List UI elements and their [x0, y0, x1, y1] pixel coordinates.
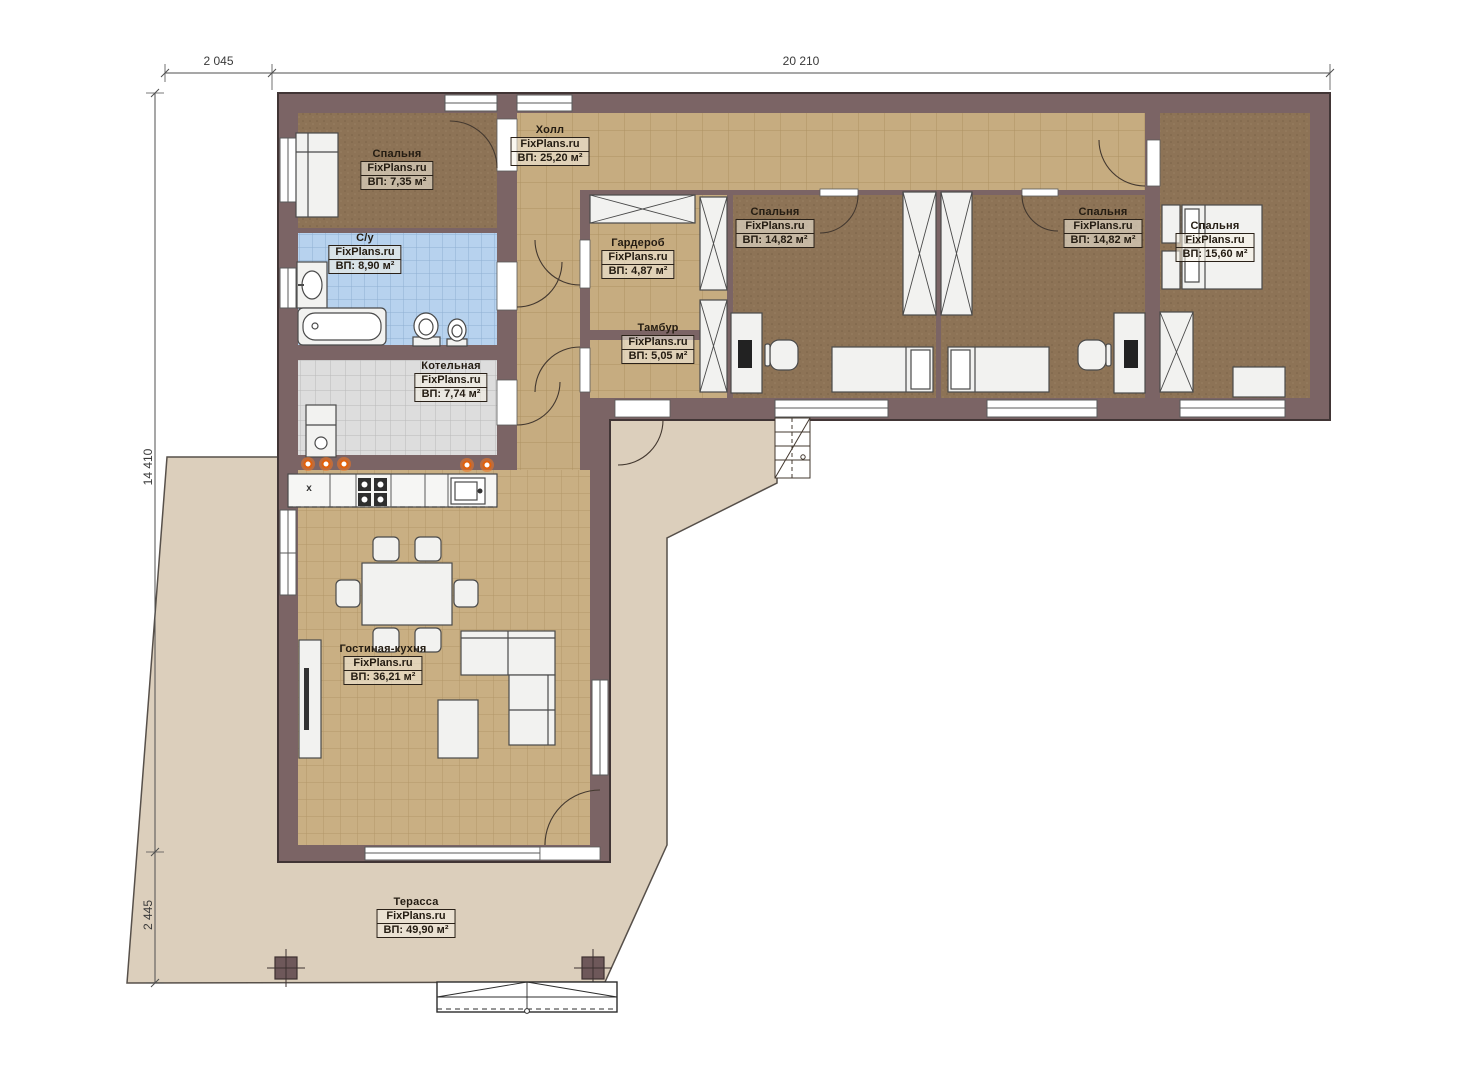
window	[280, 268, 296, 308]
room-name: Котельная	[414, 360, 487, 372]
room-brand: FixPlans.ru	[377, 909, 456, 924]
window	[1180, 400, 1285, 417]
room-area: ВП: 7,74 м²	[414, 387, 487, 402]
spotlight-icon	[460, 458, 474, 472]
window	[445, 95, 497, 111]
room-name: Спальня	[1064, 206, 1143, 218]
coffee-table	[438, 700, 478, 758]
room-name: С/у	[328, 232, 401, 244]
room-brand: FixPlans.ru	[601, 250, 674, 265]
room-name: Спальня	[360, 148, 433, 160]
window	[280, 138, 296, 202]
window	[365, 847, 540, 860]
window	[517, 95, 572, 111]
room-label-bedroom-3: Спальня FixPlans.ru ВП: 14,82 м²	[1064, 206, 1143, 248]
room-name: Спальня	[736, 206, 815, 218]
dimension-left-bottom: 2 445	[141, 875, 155, 955]
room-label-bedroom-2: Спальня FixPlans.ru ВП: 14,82 м²	[736, 206, 815, 248]
room-area: ВП: 15,60 м²	[1176, 247, 1255, 262]
kitchen-counter	[288, 474, 497, 507]
room-name: Терасса	[377, 896, 456, 908]
desk	[1114, 313, 1145, 393]
room-area: ВП: 5,05 м²	[621, 349, 694, 364]
dishwasher-mark: x	[306, 483, 312, 494]
dimension-left-main: 14 410	[141, 422, 155, 512]
room-label-vestibule: Тамбур FixPlans.ru ВП: 5,05 м²	[621, 322, 694, 364]
desk	[731, 313, 762, 393]
spotlight-icon	[319, 457, 333, 471]
floor-plan-page: Спальня FixPlans.ru ВП: 7,35 м² Холл Fix…	[0, 0, 1473, 1080]
room-area: ВП: 8,90 м²	[328, 259, 401, 274]
bed-single	[948, 347, 1049, 392]
room-brand: FixPlans.ru	[1064, 219, 1143, 234]
floor-plan-canvas	[0, 0, 1473, 1080]
closet-cabinet	[700, 300, 727, 392]
room-label-living-kitchen: Гостиная-кухня FixPlans.ru ВП: 36,21 м²	[339, 643, 426, 685]
room-label-bedroom-1: Спальня FixPlans.ru ВП: 7,35 м²	[360, 148, 433, 190]
bed-single	[296, 133, 338, 217]
room-brand: FixPlans.ru	[1176, 233, 1255, 248]
spotlight-icon	[301, 457, 315, 471]
room-label-bedroom-4: Спальня FixPlans.ru ВП: 15,60 м²	[1176, 220, 1255, 262]
room-area: ВП: 14,82 м²	[736, 233, 815, 248]
dimension-top-main: 20 210	[272, 54, 1330, 68]
bed-single	[832, 347, 933, 392]
room-area: ВП: 7,35 м²	[360, 175, 433, 190]
terrace-steps	[437, 982, 617, 1013]
spotlight-icon	[337, 457, 351, 471]
room-name: Тамбур	[621, 322, 694, 334]
desk-chair	[765, 340, 798, 370]
entry-steps	[775, 418, 810, 478]
room-area: ВП: 49,90 м²	[377, 923, 456, 938]
tv-stand	[299, 640, 321, 758]
room-brand: FixPlans.ru	[621, 335, 694, 350]
wardrobe-cabinet	[903, 192, 936, 315]
window	[987, 400, 1097, 417]
room-brand: FixPlans.ru	[328, 245, 401, 260]
room-brand: FixPlans.ru	[736, 219, 815, 234]
room-brand: FixPlans.ru	[360, 161, 433, 176]
kitchen-sink	[451, 478, 485, 504]
room-area: ВП: 25,20 м²	[511, 151, 590, 166]
floor-hall-strip	[517, 190, 580, 470]
room-brand: FixPlans.ru	[511, 137, 590, 152]
room-label-bathroom: С/у FixPlans.ru ВП: 8,90 м²	[328, 232, 401, 274]
wardrobe-cabinet	[941, 192, 972, 315]
room-label-terrace: Терасса FixPlans.ru ВП: 49,90 м²	[377, 896, 456, 938]
side-table	[1233, 367, 1285, 397]
room-area: ВП: 36,21 м²	[344, 670, 423, 685]
room-label-boiler-room: Котельная FixPlans.ru ВП: 7,74 м²	[414, 360, 487, 402]
closet-cabinet	[700, 197, 727, 290]
wardrobe-cabinet	[1160, 312, 1193, 392]
bidet	[447, 319, 467, 346]
dimension-top-left: 2 045	[165, 54, 272, 68]
toilet	[413, 313, 440, 346]
room-brand: FixPlans.ru	[344, 656, 423, 671]
bathtub	[298, 308, 386, 345]
window	[280, 510, 296, 595]
room-name: Холл	[511, 124, 590, 136]
room-area: ВП: 4,87 м²	[601, 264, 674, 279]
boiler-unit	[306, 405, 336, 457]
partition-walls	[936, 190, 941, 398]
vanity-sink	[297, 262, 327, 308]
room-name: Гардероб	[601, 237, 674, 249]
room-brand: FixPlans.ru	[414, 373, 487, 388]
room-area: ВП: 14,82 м²	[1064, 233, 1143, 248]
window	[592, 680, 608, 775]
room-name: Гостиная-кухня	[339, 643, 426, 655]
room-label-wardrobe: Гардероб FixPlans.ru ВП: 4,87 м²	[601, 237, 674, 279]
desk-chair	[1078, 340, 1111, 370]
closet-cabinet	[590, 195, 695, 223]
spotlight-icon	[480, 458, 494, 472]
room-label-hall: Холл FixPlans.ru ВП: 25,20 м²	[511, 124, 590, 166]
floor-hall	[517, 113, 1145, 190]
room-name: Спальня	[1176, 220, 1255, 232]
window	[775, 400, 888, 417]
